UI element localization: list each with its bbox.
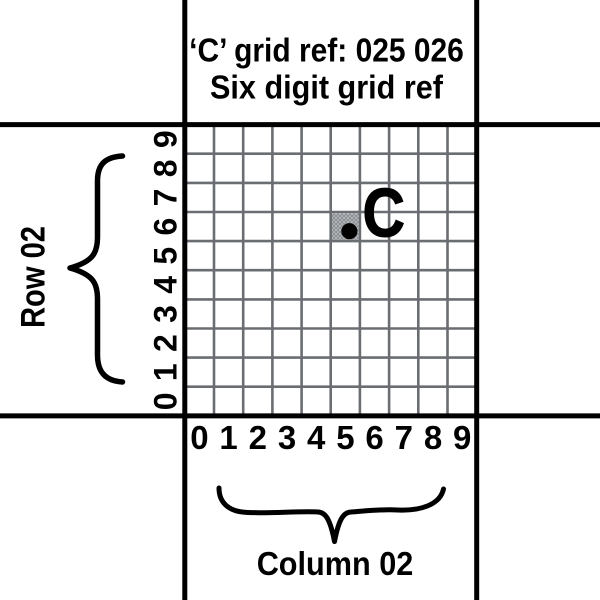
svg-text:Six digit grid ref: Six digit grid ref: [210, 68, 444, 105]
svg-text:2: 2: [249, 419, 267, 456]
svg-text:8: 8: [424, 419, 442, 456]
svg-text:4: 4: [148, 276, 184, 294]
svg-text:7: 7: [148, 189, 184, 207]
svg-text:C: C: [363, 175, 406, 252]
svg-text:5: 5: [336, 419, 354, 456]
svg-text:0: 0: [190, 419, 208, 456]
svg-text:7: 7: [395, 419, 413, 456]
svg-text:6: 6: [148, 218, 184, 236]
svg-text:1: 1: [148, 363, 184, 381]
svg-text:1: 1: [219, 419, 237, 456]
svg-text:3: 3: [278, 419, 296, 456]
svg-text:8: 8: [148, 159, 184, 177]
svg-text:3: 3: [148, 305, 184, 323]
svg-text:Column 02: Column 02: [257, 545, 414, 582]
svg-text:0: 0: [148, 393, 184, 411]
svg-text:5: 5: [148, 247, 184, 265]
svg-text:9: 9: [453, 419, 471, 456]
svg-text:6: 6: [365, 419, 383, 456]
svg-text:Row 02: Row 02: [15, 226, 53, 328]
svg-text:2: 2: [148, 334, 184, 352]
svg-text:‘C’ grid ref: 025 026: ‘C’ grid ref: 025 026: [189, 31, 464, 68]
svg-text:4: 4: [307, 419, 326, 456]
svg-text:9: 9: [148, 130, 184, 148]
